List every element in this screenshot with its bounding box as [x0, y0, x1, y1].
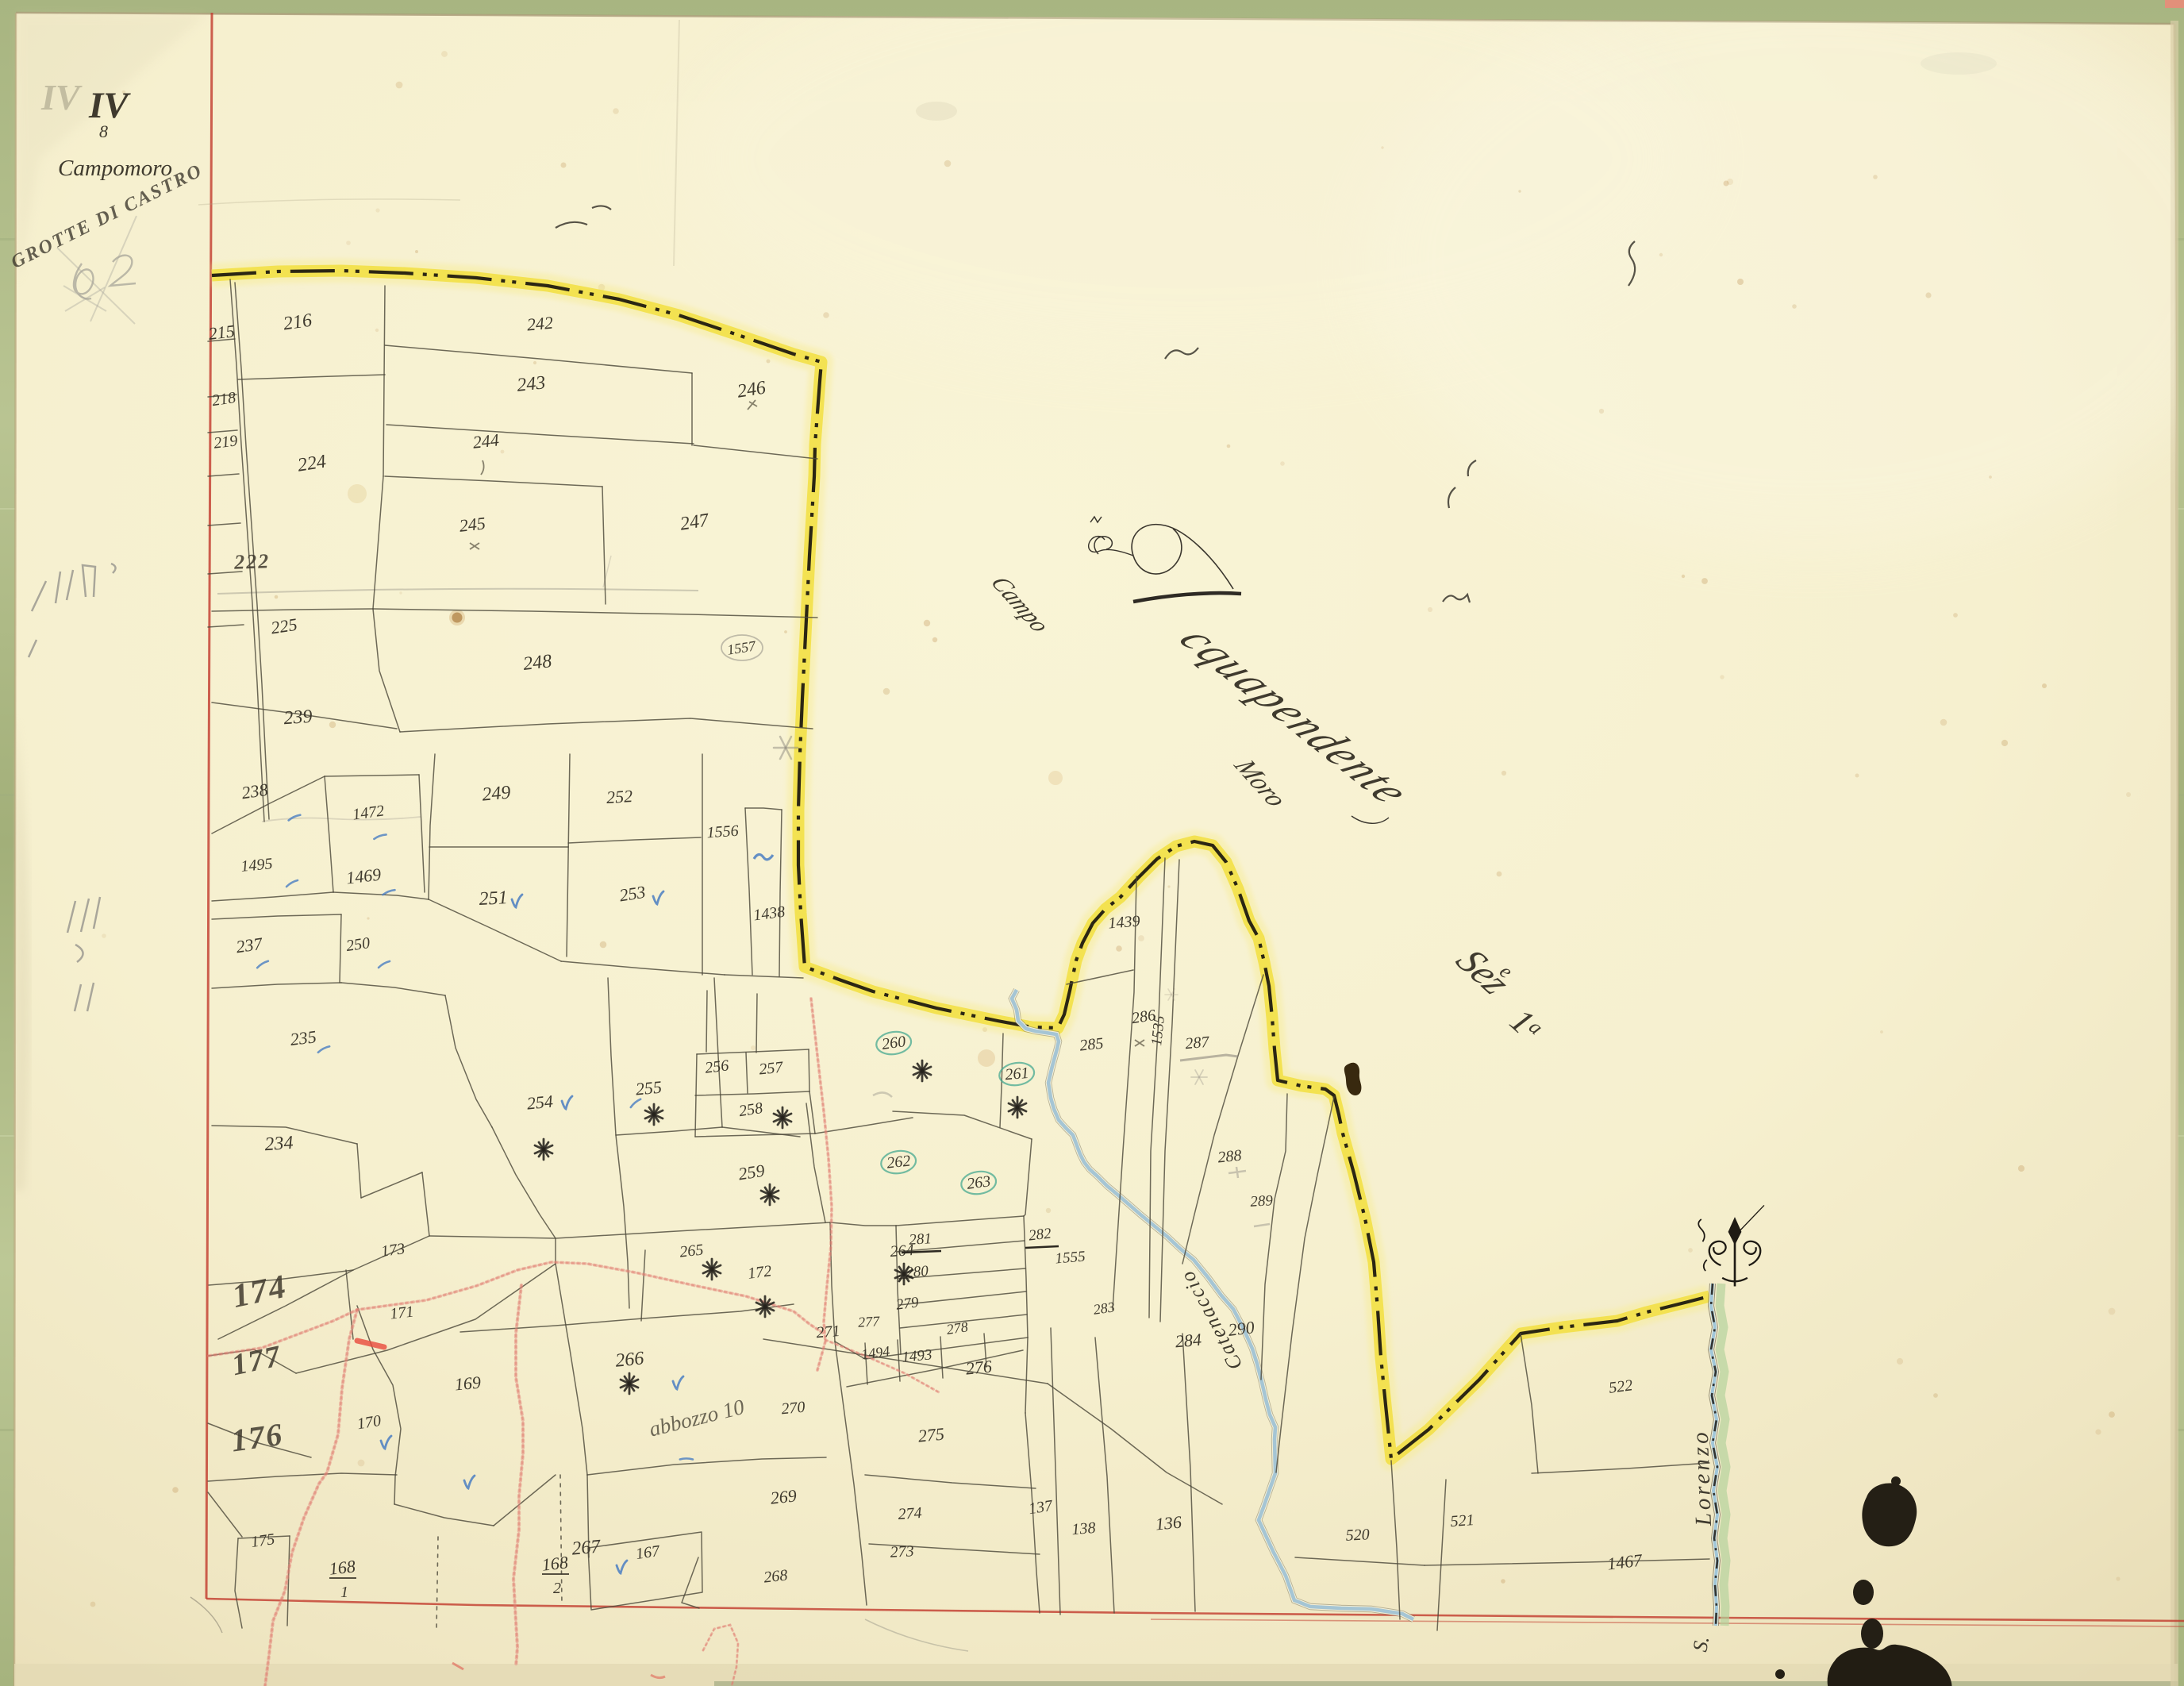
svg-text:251: 251	[479, 887, 508, 910]
svg-text:1469: 1469	[345, 864, 383, 888]
svg-text:263: 263	[966, 1172, 991, 1193]
svg-text:275: 275	[917, 1424, 945, 1446]
svg-text:173: 173	[380, 1240, 406, 1261]
svg-text:IV: IV	[88, 85, 131, 126]
svg-text:224: 224	[296, 452, 328, 476]
svg-text:249: 249	[481, 782, 511, 805]
svg-text:248: 248	[522, 651, 553, 675]
svg-text:254: 254	[526, 1091, 554, 1114]
svg-text:137: 137	[1028, 1497, 1055, 1518]
svg-text:235: 235	[289, 1026, 317, 1049]
svg-text:1439: 1439	[1108, 913, 1141, 933]
svg-text:175: 175	[250, 1530, 276, 1551]
svg-text:216: 216	[282, 310, 313, 335]
svg-text:258: 258	[738, 1099, 764, 1120]
svg-text:281: 281	[909, 1230, 932, 1249]
svg-text:289: 289	[1250, 1192, 1274, 1211]
svg-text:167: 167	[635, 1542, 662, 1563]
svg-text:238: 238	[240, 779, 269, 803]
svg-text:219: 219	[213, 432, 238, 452]
svg-text:1467: 1467	[1606, 1549, 1644, 1573]
svg-text:242: 242	[526, 313, 554, 335]
svg-text:520: 520	[1345, 1526, 1370, 1545]
svg-text:IV: IV	[40, 77, 83, 117]
svg-text:279: 279	[895, 1294, 920, 1314]
svg-text:1556: 1556	[706, 822, 739, 842]
svg-text:522: 522	[1608, 1376, 1634, 1397]
svg-text:288: 288	[1217, 1147, 1242, 1167]
svg-text:255: 255	[635, 1077, 663, 1099]
svg-text:268: 268	[763, 1566, 788, 1586]
svg-text:215: 215	[207, 321, 236, 344]
svg-text:252: 252	[606, 786, 633, 807]
svg-text:169: 169	[454, 1372, 482, 1395]
svg-text:1555: 1555	[1055, 1249, 1086, 1268]
svg-text:283: 283	[1092, 1299, 1116, 1318]
svg-text:259: 259	[737, 1161, 766, 1184]
svg-text:Campomoro: Campomoro	[58, 156, 172, 181]
svg-text:266: 266	[614, 1348, 644, 1371]
svg-text:269: 269	[769, 1485, 798, 1507]
svg-text:276: 276	[965, 1356, 993, 1378]
svg-text:168: 168	[328, 1556, 356, 1578]
svg-text:287: 287	[1185, 1034, 1211, 1053]
svg-text:267: 267	[571, 1536, 602, 1559]
svg-text:239: 239	[283, 706, 313, 729]
svg-text:1495: 1495	[240, 855, 273, 876]
svg-text:176: 176	[229, 1416, 286, 1459]
svg-text:237: 237	[235, 933, 264, 957]
svg-text:138: 138	[1071, 1519, 1097, 1538]
svg-text:256: 256	[704, 1057, 729, 1076]
svg-text:262: 262	[886, 1152, 911, 1172]
svg-text:285: 285	[1079, 1035, 1104, 1055]
svg-text:282: 282	[1028, 1225, 1052, 1244]
svg-text:521: 521	[1450, 1511, 1475, 1530]
svg-text:273: 273	[890, 1542, 914, 1561]
svg-text:277: 277	[858, 1313, 881, 1330]
svg-text:170: 170	[356, 1412, 383, 1433]
svg-text:257: 257	[758, 1058, 784, 1078]
svg-text:1: 1	[340, 1584, 348, 1601]
svg-text:171: 171	[389, 1303, 414, 1322]
svg-text:271: 271	[816, 1322, 841, 1341]
svg-text:278: 278	[945, 1318, 969, 1338]
svg-text:265: 265	[679, 1241, 704, 1261]
svg-text:234: 234	[264, 1133, 294, 1156]
svg-text:270: 270	[780, 1399, 806, 1418]
svg-text:243: 243	[516, 372, 546, 396]
svg-text:284: 284	[1175, 1330, 1202, 1352]
svg-text:218: 218	[211, 389, 237, 410]
svg-text:253: 253	[618, 882, 647, 906]
svg-text:Lorenzo: Lorenzo	[1688, 1429, 1717, 1527]
svg-text:222: 222	[233, 549, 271, 574]
svg-text:1535: 1535	[1148, 1014, 1168, 1046]
svg-text:168: 168	[540, 1552, 568, 1574]
svg-text:246: 246	[736, 377, 767, 402]
svg-text:247: 247	[679, 510, 710, 534]
svg-text:250: 250	[345, 934, 371, 955]
svg-text:245: 245	[458, 513, 486, 536]
svg-text:225: 225	[270, 614, 298, 638]
svg-text:274: 274	[898, 1504, 922, 1523]
svg-text:260: 260	[881, 1033, 907, 1053]
svg-text:8: 8	[99, 121, 108, 141]
svg-text:2: 2	[553, 1580, 561, 1597]
svg-text:172: 172	[747, 1262, 773, 1283]
svg-text:136: 136	[1155, 1512, 1182, 1534]
svg-text:244: 244	[471, 429, 499, 452]
svg-text:261: 261	[1005, 1064, 1030, 1084]
svg-text:1493: 1493	[902, 1346, 933, 1366]
